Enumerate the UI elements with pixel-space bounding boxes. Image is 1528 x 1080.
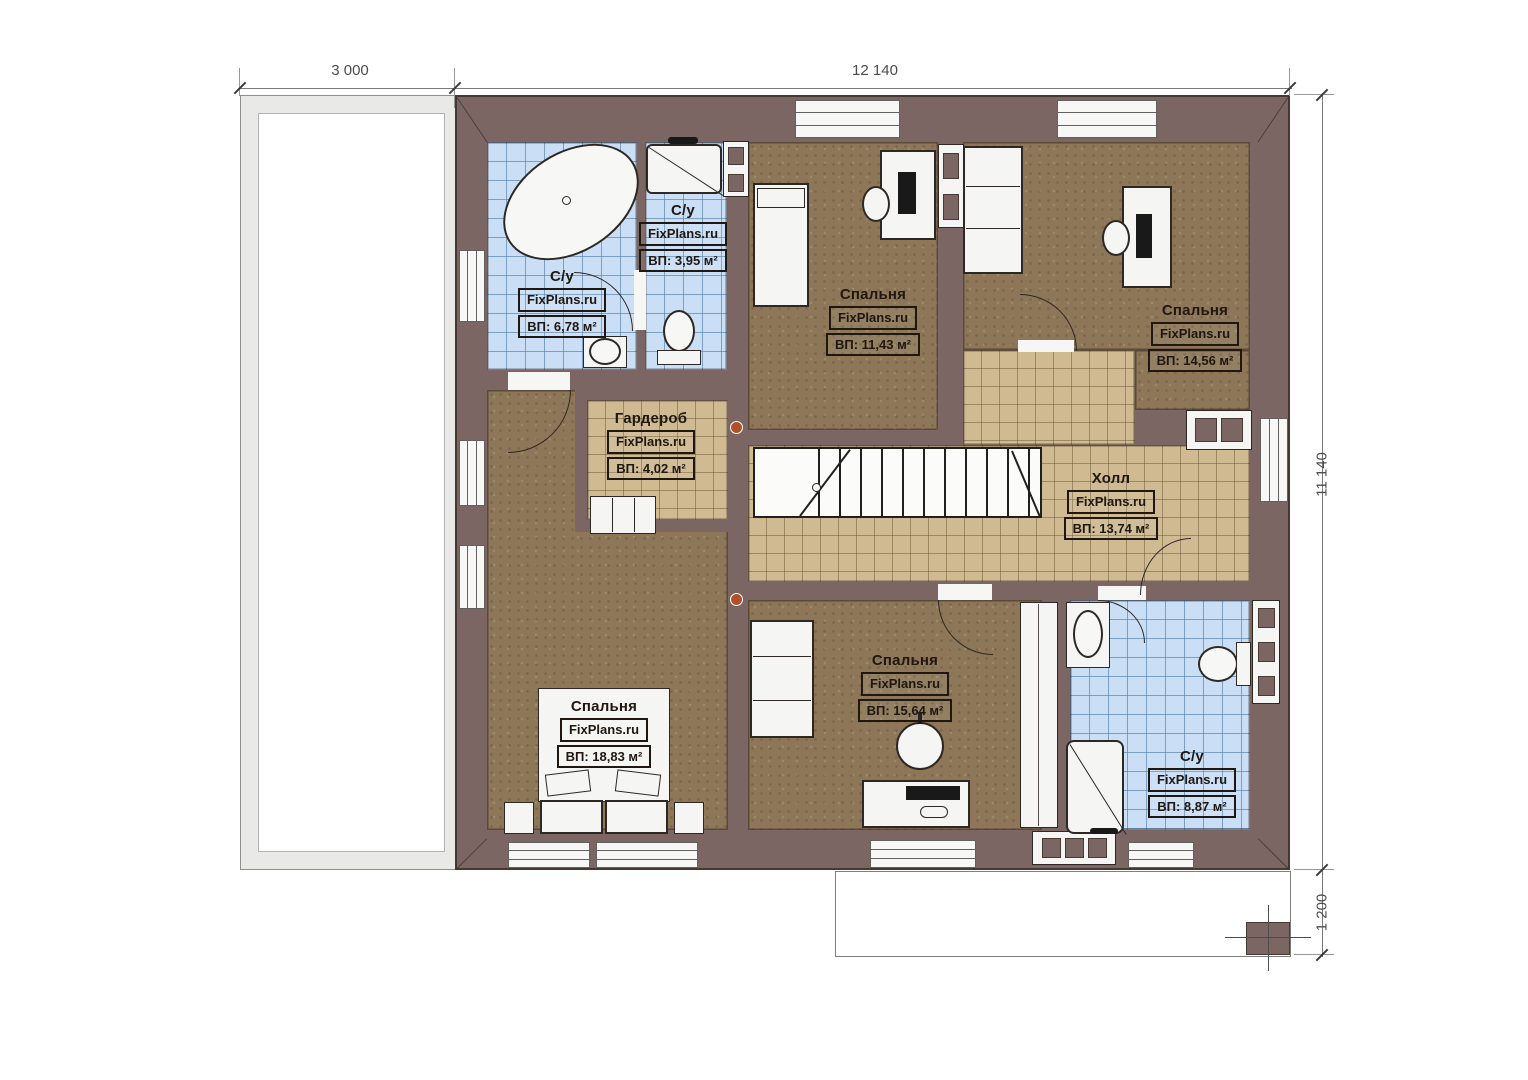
brand-watermark: FixPlans.ru (639, 222, 727, 246)
room-name: Спальня (840, 286, 906, 303)
desk-keyboard-icon (920, 806, 948, 818)
room-label-bedroom-topmid: Спальня FixPlans.ru ВП: 11,43 м² (808, 286, 938, 356)
dimension-line-right (1322, 93, 1323, 957)
door-opening (634, 270, 646, 330)
bed-blanket-line (966, 186, 1020, 187)
floor-plan-canvas: С/у FixPlans.ru ВП: 6,78 м² С/у FixPlans… (0, 0, 1528, 1080)
window (459, 545, 485, 609)
room-area: ВП: 18,83 м² (557, 745, 652, 769)
room-area: ВП: 13,74 м² (1064, 517, 1159, 541)
dimension-label-right-main: 11 140 (1314, 445, 1331, 505)
room-label-bath-botright: С/у FixPlans.ru ВП: 8,87 м² (1128, 748, 1256, 818)
wardrobe-cabinet-line (1038, 604, 1039, 826)
door-opening (938, 584, 992, 600)
dresser-line (634, 498, 635, 532)
hall-upper-floor (963, 350, 1135, 445)
window (795, 100, 900, 138)
window (508, 842, 590, 868)
bed-blanket-line (753, 700, 811, 701)
nightstand-icon (674, 802, 704, 834)
room-area: ВП: 8,87 м² (1148, 795, 1236, 819)
window (459, 250, 485, 322)
window (1260, 418, 1288, 502)
nightstand-icon (504, 802, 534, 834)
room-label-bedroom-botleft: Спальня FixPlans.ru ВП: 18,83 м² (540, 698, 668, 768)
bed-blanket-line (753, 656, 811, 657)
staircase-start-marker (812, 483, 821, 492)
bed-mattress-icon (540, 800, 603, 834)
dimension-extension-line (239, 68, 240, 96)
wall-niche (1186, 410, 1252, 450)
wall-niche (1032, 831, 1116, 865)
brand-watermark: FixPlans.ru (1151, 322, 1239, 346)
brand-watermark: FixPlans.ru (861, 672, 949, 696)
wall-marker-dot (730, 593, 743, 606)
desk-monitor-icon (1136, 214, 1152, 258)
room-label-bath-topleft: С/у FixPlans.ru ВП: 6,78 м² (492, 268, 632, 338)
window (870, 840, 976, 868)
room-name: Спальня (571, 698, 637, 715)
room-name: С/у (550, 268, 574, 285)
room-label-hall: Холл FixPlans.ru ВП: 13,74 м² (1046, 470, 1176, 540)
toilet-bowl-icon (663, 310, 695, 352)
desk-monitor-icon (906, 786, 960, 800)
balcony-interior (258, 113, 445, 852)
staircase-treads (818, 449, 1040, 516)
bed-blanket-line (966, 228, 1020, 229)
dimension-extension-line (1294, 869, 1334, 870)
bed-icon (963, 146, 1023, 274)
door-opening (1098, 586, 1146, 600)
room-name: Гардероб (615, 410, 688, 427)
brand-watermark: FixPlans.ru (607, 430, 695, 454)
office-chair-icon (862, 186, 890, 222)
dimension-label-top-left: 3 000 (280, 62, 420, 79)
office-chair-icon (1102, 220, 1130, 256)
shower-faucet-icon (1090, 828, 1118, 834)
desk-monitor-icon (898, 172, 916, 214)
window (1057, 100, 1157, 138)
bed-mattress-icon (605, 800, 668, 834)
wall-niche (938, 144, 964, 228)
brand-watermark: FixPlans.ru (560, 718, 648, 742)
room-area: ВП: 3,95 м² (639, 249, 727, 273)
toilet-tank-icon (1236, 642, 1251, 686)
brand-watermark: FixPlans.ru (829, 306, 917, 330)
door-opening (508, 372, 570, 390)
dimension-extension-line (1294, 94, 1334, 95)
window (459, 440, 485, 506)
porch-outline (835, 871, 1291, 957)
room-area: ВП: 6,78 м² (518, 315, 606, 339)
window (1128, 842, 1194, 868)
sink-icon (589, 338, 621, 365)
wall-marker-dot (730, 421, 743, 434)
brand-watermark: FixPlans.ru (1067, 490, 1155, 514)
room-area: ВП: 15,64 м² (858, 699, 953, 723)
toilet-tank-icon (657, 350, 701, 365)
dresser-line (612, 498, 613, 532)
window (596, 842, 698, 868)
bed-icon (750, 620, 814, 738)
shower-faucet-icon (668, 137, 698, 144)
brand-watermark: FixPlans.ru (518, 288, 606, 312)
room-name: Спальня (1162, 302, 1228, 319)
room-name: Спальня (872, 652, 938, 669)
room-label-bedroom-botmid: Спальня FixPlans.ru ВП: 15,64 м² (840, 652, 970, 722)
room-label-bath-topsmall: С/у FixPlans.ru ВП: 3,95 м² (627, 202, 739, 272)
room-area: ВП: 11,43 м² (826, 333, 920, 357)
room-name: С/у (1180, 748, 1204, 765)
room-label-wardrobe: Гардероб FixPlans.ru ВП: 4,02 м² (586, 410, 716, 480)
plant-pot-icon (896, 722, 944, 770)
wardrobe-cabinet-icon (1020, 602, 1058, 828)
dimension-extension-line (1294, 954, 1334, 955)
porch-marker-crosshair-v (1268, 905, 1269, 971)
wall-niche (1252, 600, 1280, 704)
dimension-label-right-bottom: 1 200 (1314, 883, 1331, 943)
dimension-line-top (238, 88, 1292, 89)
room-label-bedroom-topright: Спальня FixPlans.ru ВП: 14,56 м² (1132, 302, 1258, 372)
bathtub-drain-icon (562, 196, 571, 205)
dimension-extension-line (1289, 68, 1290, 96)
brand-watermark: FixPlans.ru (1148, 768, 1236, 792)
toilet-bowl-icon (1198, 646, 1238, 682)
dresser-icon (590, 496, 656, 534)
bed-pillow-icon (757, 188, 805, 208)
room-name: С/у (671, 202, 695, 219)
wall-niche (723, 141, 749, 197)
dimension-label-top-main: 12 140 (800, 62, 950, 79)
room-area: ВП: 14,56 м² (1148, 349, 1243, 373)
room-area: ВП: 4,02 м² (607, 457, 695, 481)
room-name: Холл (1092, 470, 1130, 487)
